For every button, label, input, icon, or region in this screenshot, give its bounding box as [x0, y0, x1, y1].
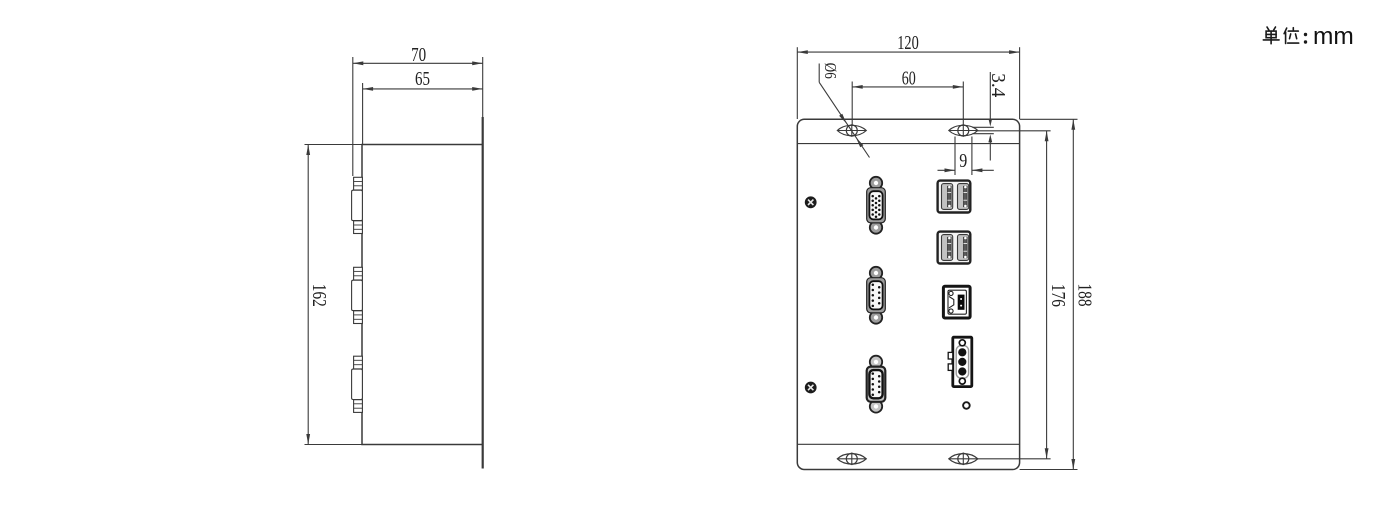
- svg-text:120: 120: [897, 33, 919, 54]
- svg-text:70: 70: [411, 45, 426, 66]
- svg-text:mm: mm: [1313, 23, 1354, 50]
- svg-text:188: 188: [1073, 284, 1094, 307]
- svg-text:9: 9: [959, 151, 967, 172]
- svg-text:Ø6: Ø6: [821, 63, 840, 79]
- svg-text:3.4: 3.4: [987, 73, 1008, 97]
- svg-text:176: 176: [1047, 284, 1068, 307]
- svg-text:60: 60: [902, 68, 916, 89]
- svg-text:65: 65: [415, 69, 430, 90]
- svg-text:162: 162: [308, 284, 329, 307]
